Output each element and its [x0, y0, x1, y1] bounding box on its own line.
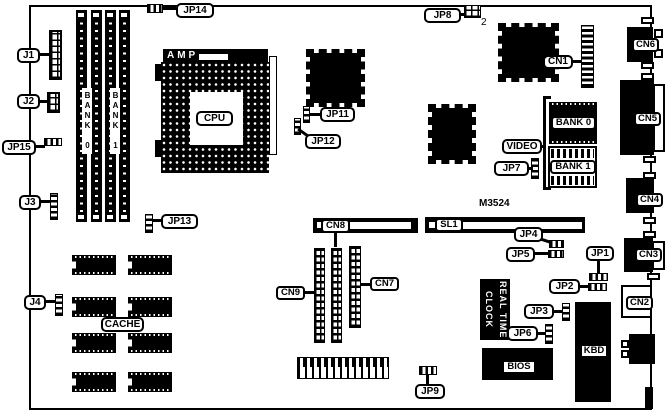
jp6-jumper	[545, 324, 553, 344]
jp11-jumper	[303, 106, 310, 123]
cn4-label: CN4	[636, 193, 663, 207]
bracket-tab	[643, 217, 656, 224]
chipset-chip-2	[432, 108, 472, 160]
jp14-jumper	[147, 4, 163, 13]
cn3-label: CN3	[635, 248, 662, 262]
jp2-jumper	[588, 283, 607, 291]
cache-chip	[128, 297, 172, 317]
jp7-label: JP7	[494, 161, 529, 176]
jp3-label: JP3	[524, 304, 554, 319]
simm-bank1-label: BANK 1	[110, 88, 120, 154]
chipset-chip-3	[502, 27, 555, 78]
jp13-label: JP13	[161, 214, 198, 229]
multi-io-connector	[297, 357, 389, 379]
cn5-label: CN5	[634, 112, 661, 126]
jp1-pointer	[597, 260, 600, 273]
keyboard-din-connector	[629, 334, 655, 364]
sl1-label: SL1	[435, 218, 463, 232]
bracket-tab	[641, 73, 654, 80]
cache-chip	[128, 372, 172, 392]
cn6-label: CN6	[632, 38, 659, 52]
din-pin	[621, 340, 629, 348]
jp4-jumper	[549, 240, 564, 248]
simm-bank0-label: BANK 0	[82, 88, 92, 154]
j4-label: J4	[24, 295, 46, 310]
rtc-text-line2: CLOCK	[482, 279, 496, 340]
video-bank0-label: BANK 0	[551, 116, 596, 130]
cn8-header	[331, 248, 342, 343]
jp8-pin2-text: 2	[481, 17, 487, 28]
jp5-label: JP5	[506, 247, 535, 262]
j1-label: J1	[17, 48, 40, 63]
video-label: VIDEO	[502, 139, 542, 154]
din-pin	[621, 350, 629, 358]
cn9-label: CN9	[276, 286, 305, 300]
j4-connector	[55, 294, 63, 316]
jp9-label: JP9	[415, 384, 445, 399]
kbd-label: KBD	[580, 344, 608, 358]
cache-chip	[72, 297, 116, 317]
j3-pointer	[41, 200, 51, 203]
cn1-label: CN1	[543, 55, 573, 69]
jp3-jumper	[562, 303, 570, 321]
amp-header-bar: AMP	[163, 49, 268, 62]
jp5-jumper	[548, 250, 564, 258]
cache-label: CACHE	[101, 317, 144, 332]
chipset-chip-1	[310, 53, 361, 103]
cn1-connector	[581, 25, 594, 88]
cpu-label: CPU	[196, 111, 233, 126]
board-model-text: M3524	[479, 198, 510, 209]
cache-chip	[72, 333, 116, 353]
cache-chip	[72, 372, 116, 392]
amp-header-window	[199, 54, 228, 60]
cpu-socket-right-rail	[269, 56, 277, 155]
j2-pointer	[40, 100, 48, 103]
jp14-label: JP14	[176, 3, 214, 18]
bracket-tab	[641, 62, 654, 69]
cn9-pointer	[304, 291, 315, 294]
cn6-port-upper	[654, 29, 663, 38]
jp1-label: JP1	[586, 246, 614, 261]
cache-chip	[128, 333, 172, 353]
jp1-jumper	[589, 273, 608, 281]
jp14-pointer	[163, 7, 176, 10]
jp15-pointer	[36, 145, 45, 148]
edge-strip	[645, 387, 653, 409]
jp15-label: JP15	[2, 140, 36, 155]
cn8-label: CN8	[321, 219, 350, 233]
cn7-header	[349, 246, 361, 328]
video-bank1-label: BANK 1	[550, 160, 596, 174]
j1-pointer	[40, 53, 50, 56]
jp8-label: JP8	[424, 8, 461, 23]
jp13-jumper	[145, 214, 153, 233]
cn8-pointer	[334, 232, 337, 247]
cache-chip	[72, 255, 116, 275]
bracket-tab	[643, 156, 656, 163]
jp15-jumper	[44, 138, 62, 146]
bracket-tab	[643, 172, 656, 179]
bracket-tab	[643, 231, 656, 238]
j4-pointer	[46, 300, 56, 303]
cn2-label: CN2	[626, 296, 653, 310]
simm-slot-2	[91, 10, 102, 222]
simm-slot-4	[119, 10, 130, 222]
j2-connector	[47, 92, 60, 113]
amp-brand-text: AMP	[167, 50, 198, 61]
jp11-label: JP11	[320, 107, 355, 122]
j2-label: J2	[17, 94, 40, 109]
jp5-pointer	[534, 252, 549, 255]
j1-connector	[49, 30, 62, 80]
j3-label: J3	[19, 195, 41, 210]
jp2-label: JP2	[549, 279, 580, 294]
rtc-chip: REAL TIME CLOCK	[480, 279, 510, 340]
cn9-header	[314, 248, 325, 343]
motherboard-diagram: J1 J2 JP15 J3 J4 BANK 0 BANK 1 JP14 JP13…	[0, 0, 666, 415]
jp4-label: JP4	[514, 227, 543, 242]
cn7-label: CN7	[370, 277, 399, 291]
jp6-label: JP6	[507, 326, 538, 341]
bracket-tab	[641, 17, 654, 24]
bracket-tab	[647, 273, 660, 280]
bios-label: BIOS	[502, 360, 536, 374]
jp12-label: JP12	[305, 134, 341, 149]
j3-connector	[50, 193, 58, 220]
cache-chip	[128, 255, 172, 275]
jp8-jumper-block	[464, 5, 481, 18]
